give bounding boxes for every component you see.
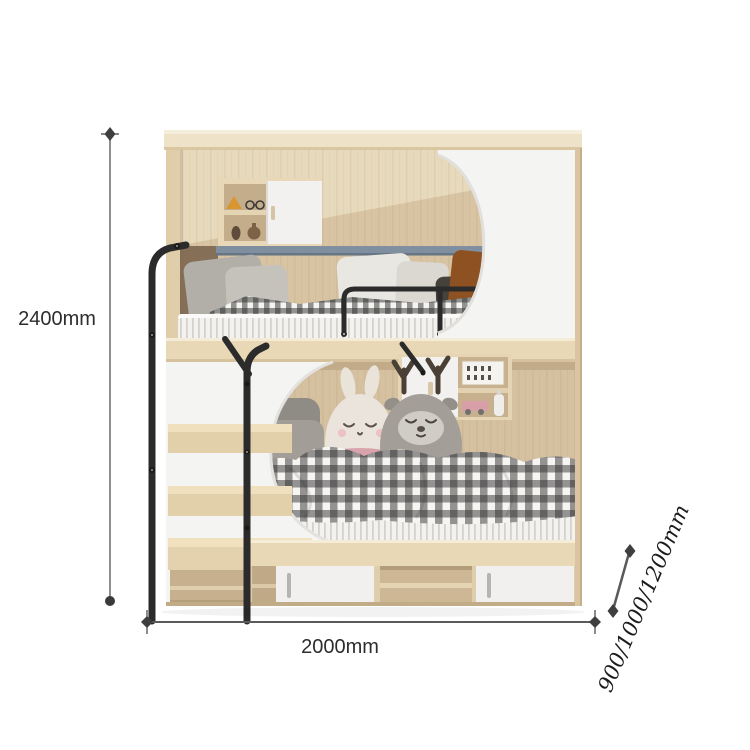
open-shelves-shadow	[380, 566, 472, 570]
depth-dimension: 900/1000/1200mm	[593, 501, 694, 695]
lower-door-handle	[428, 382, 433, 395]
vase-neck	[252, 223, 256, 228]
width-dimension: 2000mm	[141, 610, 601, 658]
shelf-divider	[224, 210, 268, 215]
round-vase-ornament	[248, 227, 261, 240]
middle-band-shadow	[166, 359, 580, 362]
toy-bottle-cap	[497, 390, 501, 395]
right-edge-line	[580, 148, 582, 606]
bunk-bed-illustration	[149, 130, 585, 621]
depth-near-diamond-marker	[608, 604, 619, 618]
depth-dimension-line	[613, 553, 629, 610]
product-dimension-diagram: 2400mm 2000mm 900/1000/1200mm	[0, 0, 750, 750]
floor-shadow	[161, 607, 585, 617]
toy-bottle	[494, 394, 504, 416]
bottom-band	[250, 540, 580, 566]
drawer-handle-left	[287, 573, 291, 598]
height-dimension: 2400mm	[18, 127, 119, 606]
bunk-bed-diagram-canvas: 2400mm 2000mm 900/1000/1200mm	[0, 0, 750, 750]
top-frame-band	[164, 130, 582, 150]
picture-frame	[462, 361, 504, 385]
top-band-highlight	[164, 130, 582, 134]
toy-truck-wheel	[465, 409, 471, 415]
step-2-top	[168, 486, 292, 494]
toy-truck	[462, 401, 488, 411]
step-3-front	[168, 432, 292, 453]
height-bottom-dot-marker	[105, 596, 115, 606]
open-cubby-left-shelf	[252, 584, 276, 588]
open-shelves-divider	[380, 583, 472, 588]
right-side-edge	[575, 148, 582, 606]
width-label: 2000mm	[301, 636, 379, 658]
bed-bottom-edge	[166, 602, 580, 606]
depth-far-diamond-marker	[625, 544, 636, 558]
depth-label: 900/1000/1200mm	[593, 501, 694, 695]
step-2-front	[168, 494, 292, 516]
toy-truck-wheel-2	[478, 409, 484, 415]
vase-ornament	[232, 226, 241, 240]
step-3-top	[168, 424, 292, 432]
bottom-band-highlight	[250, 540, 580, 543]
door-handle-slot	[271, 206, 275, 220]
drawer-handle-right	[487, 573, 491, 598]
door-edge	[266, 181, 268, 244]
top-band-shadow	[164, 147, 582, 150]
height-label: 2400mm	[18, 308, 96, 330]
bunny-cheek	[338, 429, 346, 437]
deer-nose	[417, 426, 425, 432]
